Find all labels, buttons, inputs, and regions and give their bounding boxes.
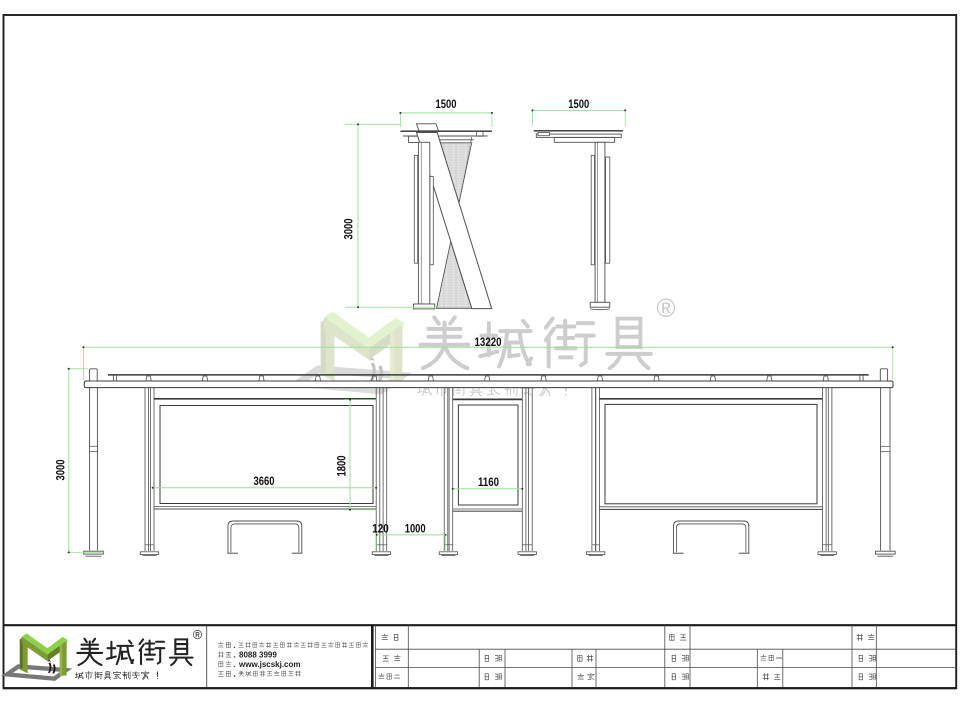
svg-text:120: 120 (372, 524, 389, 536)
svg-text:www.jscskj.com: www.jscskj.com (238, 660, 301, 669)
svg-text:®: ® (193, 628, 203, 642)
svg-text:3000: 3000 (56, 460, 68, 481)
svg-text:1800: 1800 (337, 456, 349, 477)
svg-text:13220: 13220 (475, 337, 502, 349)
svg-text:1000: 1000 (405, 524, 426, 536)
svg-text:1160: 1160 (478, 477, 499, 489)
svg-text:8088 3999: 8088 3999 (239, 650, 277, 659)
svg-text:1500: 1500 (436, 99, 457, 111)
svg-text:1500: 1500 (568, 99, 589, 111)
svg-text:3000: 3000 (344, 219, 356, 240)
svg-text:®: ® (656, 293, 675, 323)
svg-text:3660: 3660 (254, 476, 275, 488)
